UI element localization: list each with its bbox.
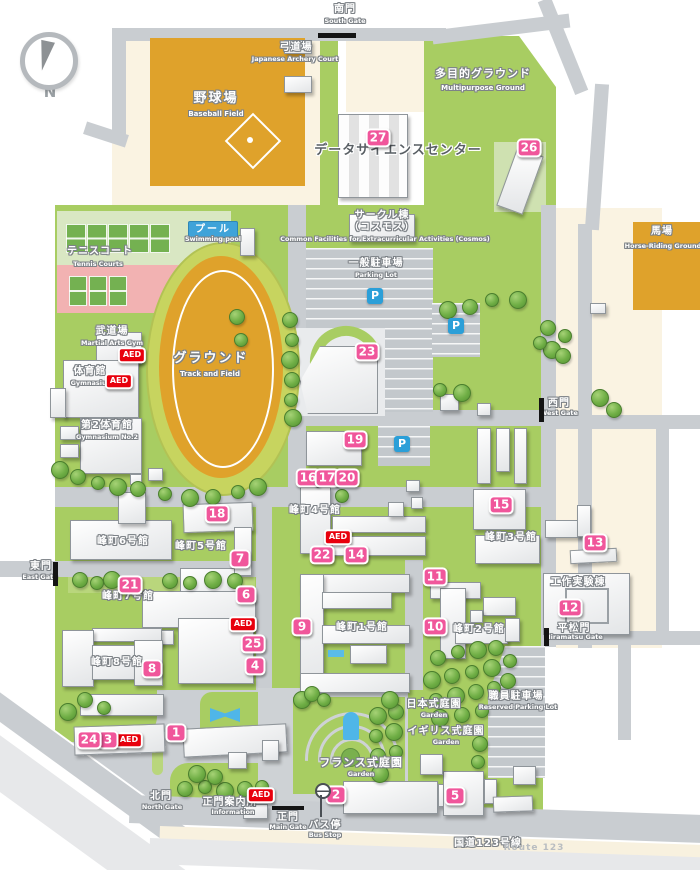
marker-8[interactable]: 8: [142, 659, 163, 678]
road: [618, 645, 631, 740]
tree-icon: [109, 478, 127, 496]
tree-icon: [433, 383, 447, 397]
tree-icon: [472, 736, 488, 752]
building: [411, 497, 423, 509]
marker-18[interactable]: 18: [205, 504, 230, 523]
marker-20[interactable]: 20: [335, 468, 360, 487]
label-gates-main-jp: 正門: [277, 812, 299, 824]
label-areas-datascience-jp: データサイエンスセンター: [314, 144, 482, 159]
label-areas-garden_fr-jp: フランス式庭園: [319, 757, 403, 770]
label-areas-archery-en: Japanese Archery Court: [252, 56, 338, 63]
label-gates-south-en: South Gate: [324, 18, 365, 25]
tree-icon: [555, 348, 571, 364]
campus-map: プール南門South Gate野球場Baseball Field弓道場Japan…: [0, 0, 700, 870]
track-lane-line: [172, 270, 274, 468]
building: [322, 592, 392, 609]
building: [470, 610, 483, 623]
aed-badge: AED: [324, 529, 352, 545]
tree-icon: [284, 372, 300, 388]
label-gates-west-jp: 西門: [548, 398, 570, 410]
label-areas-garden_jp-jp: 日本式庭園: [407, 699, 462, 711]
label-areas-archery-jp: 弓道場: [280, 42, 313, 54]
tree-icon: [462, 299, 478, 315]
gate-line: [53, 562, 58, 586]
label-areas-circle-en: Common Facilities for Extracurricular Ac…: [280, 236, 490, 243]
tennis-court: [69, 276, 87, 306]
label-areas-baseball-en: Baseball Field: [188, 110, 243, 118]
marker-22[interactable]: 22: [310, 545, 335, 564]
marker-11[interactable]: 11: [423, 567, 448, 586]
label-areas-parking_general-en: Parking Lot: [355, 272, 397, 279]
tree-icon: [451, 645, 465, 659]
aed-badge: AED: [229, 616, 257, 632]
tree-icon: [205, 489, 221, 505]
building: [514, 428, 527, 484]
tree-icon: [285, 333, 299, 347]
lawn-area: [320, 40, 338, 206]
tree-icon: [606, 402, 622, 418]
building: [262, 740, 279, 761]
tree-icon: [385, 723, 403, 741]
label-areas-multipurpose-en: Multipurpose Ground: [441, 84, 525, 92]
tree-icon: [177, 781, 193, 797]
marker-7[interactable]: 7: [230, 549, 251, 568]
label-areas-garden_jp-en: Garden: [421, 712, 448, 719]
label-areas-circle-jp: サークル棟 （コスモス）: [349, 210, 415, 233]
aed-badge: AED: [247, 787, 275, 803]
building: [284, 76, 312, 93]
building: [420, 754, 443, 775]
tree-icon: [284, 393, 298, 407]
label-gates-west-en: West Gate: [540, 410, 578, 417]
tree-icon: [181, 489, 199, 507]
tree-icon: [231, 485, 245, 499]
tree-icon: [317, 693, 331, 707]
label-areas-ground-en: Track and Field: [180, 370, 240, 378]
tree-icon: [130, 481, 146, 497]
label-areas-horse-en: Horse-Riding Ground: [625, 243, 700, 250]
building: [477, 403, 491, 416]
tree-icon: [468, 684, 484, 700]
label-areas-parking_general-jp: 一般駐車場: [349, 258, 404, 270]
label-areas-mine2-jp: 峰町2号館: [453, 624, 505, 636]
label-areas-gym-jp: 体育館: [74, 366, 107, 378]
marker-13[interactable]: 13: [583, 533, 608, 552]
tree-icon: [59, 703, 77, 721]
building: [118, 492, 146, 524]
label-gates-main-en: Main Gate: [269, 824, 306, 831]
label-areas-kosaku-jp: 工作実験棟: [551, 577, 606, 589]
tree-icon: [369, 729, 383, 743]
label-areas-multipurpose-jp: 多目的グラウンド: [435, 68, 531, 81]
label-areas-horse-jp: 馬場: [651, 226, 673, 238]
aed-badge: AED: [105, 373, 133, 389]
marker-1[interactable]: 1: [166, 723, 187, 742]
label-areas-baseball-jp: 野球場: [193, 92, 238, 107]
tree-icon: [162, 573, 178, 589]
building: [388, 502, 404, 517]
tree-icon: [469, 641, 487, 659]
label-areas-tennis-en: Tennis Courts: [73, 261, 123, 268]
gate-line: [318, 33, 356, 38]
tree-icon: [485, 293, 499, 307]
label-areas-garden_uk-en: Garden: [433, 739, 460, 746]
tree-icon: [207, 769, 223, 785]
parking-badge: P: [448, 318, 464, 334]
marker-21[interactable]: 21: [118, 575, 143, 594]
label-areas-mine6-jp: 峰町6号館: [97, 536, 149, 548]
tree-icon: [77, 692, 93, 708]
tree-icon: [284, 409, 302, 427]
label-gates-east-jp: 東門: [30, 561, 52, 573]
tree-icon: [91, 476, 105, 490]
aed-badge: AED: [115, 732, 143, 748]
label-gates-north-en: North Gate: [142, 804, 182, 811]
pitcher-mound: [247, 137, 253, 143]
tree-icon: [97, 701, 111, 715]
label-areas-mine8-jp: 峰町8号館: [91, 657, 143, 669]
marker-25[interactable]: 25: [241, 634, 266, 653]
label-areas-staff_parking-jp: 職員駐車場: [489, 691, 544, 703]
label-areas-mine3-jp: 峰町3号館: [485, 532, 537, 544]
tree-icon: [509, 291, 527, 309]
gate-line: [272, 806, 304, 810]
tree-icon: [483, 659, 501, 677]
tree-icon: [471, 755, 485, 769]
label-gates-north-jp: 北門: [150, 791, 172, 803]
aed-badge: AED: [118, 347, 146, 363]
label-areas-staff_parking-en: Reserved Parking Lot: [479, 704, 557, 711]
tree-icon: [282, 312, 298, 328]
label-gates-hiramatsu-en: Hiramatsu Gate: [545, 634, 603, 641]
building: [590, 303, 606, 314]
tree-icon: [188, 765, 206, 783]
label-areas-gym2-en: Gymnasium No.2: [76, 434, 138, 441]
building: [577, 505, 591, 537]
label-areas-budokan-jp: 武道場: [96, 326, 129, 338]
marker-14[interactable]: 14: [344, 545, 369, 564]
marker-26[interactable]: 26: [517, 138, 542, 157]
marker-5[interactable]: 5: [445, 786, 466, 805]
label-areas-mine4-jp: 峰町4号館: [289, 505, 341, 517]
tree-icon: [234, 333, 248, 347]
building: [505, 618, 520, 642]
parking-badge: P: [394, 436, 410, 452]
building: [60, 444, 79, 458]
building: [228, 752, 247, 769]
label-areas-mine5-jp: 峰町5号館: [175, 541, 227, 553]
building: [240, 228, 255, 256]
tree-icon: [500, 673, 516, 689]
building: [62, 630, 94, 687]
tree-icon: [70, 469, 86, 485]
tree-icon: [381, 691, 399, 709]
tree-icon: [90, 576, 104, 590]
tree-icon: [558, 329, 572, 343]
label-areas-route123-en: Route 123: [504, 843, 565, 853]
tree-icon: [183, 576, 197, 590]
building: [477, 428, 491, 484]
building: [50, 388, 66, 418]
tree-icon: [488, 640, 504, 656]
tennis-court: [89, 276, 107, 306]
building: [148, 468, 163, 481]
tree-icon: [465, 665, 479, 679]
label-areas-tennis-jp: テニスコート: [67, 246, 133, 258]
building: [493, 795, 534, 812]
marker-10[interactable]: 10: [423, 617, 448, 636]
tree-icon: [204, 571, 222, 589]
label-areas-garden_uk-jp: イギリス式庭園: [408, 726, 485, 738]
tree-icon: [453, 384, 471, 402]
tree-icon: [369, 707, 387, 725]
gate-line: [539, 398, 544, 422]
bus-stop-pole: [320, 795, 322, 817]
tennis-court: [150, 224, 170, 253]
label-areas-info-en: Information: [211, 809, 254, 816]
bus-stop-icon: [315, 783, 331, 799]
tree-icon: [591, 389, 609, 407]
road: [656, 429, 669, 633]
label-areas-gym2-jp: 第2体育館: [81, 420, 133, 432]
tree-icon: [540, 320, 556, 336]
road: [112, 28, 126, 140]
tree-icon: [444, 668, 460, 684]
marker-12[interactable]: 12: [558, 598, 583, 617]
marker-15[interactable]: 15: [489, 495, 514, 514]
tennis-court: [109, 276, 127, 306]
label-areas-pool-en: Swimming pool: [185, 236, 241, 243]
gate-line: [544, 628, 549, 646]
label-areas-garden_fr-en: Garden: [348, 771, 375, 778]
building: [513, 766, 536, 785]
tree-icon: [229, 309, 245, 325]
building: [483, 597, 516, 616]
tree-icon: [158, 487, 172, 501]
marker-19[interactable]: 19: [343, 430, 368, 449]
label-areas-busstop-en: Bus Stop: [309, 832, 342, 839]
tree-icon: [335, 489, 349, 503]
marker-9[interactable]: 9: [292, 617, 313, 636]
parking-badge: P: [367, 288, 383, 304]
tree-icon: [533, 336, 547, 350]
pond: [328, 650, 344, 657]
pond: [343, 712, 359, 740]
building: [343, 781, 438, 814]
tree-icon: [51, 461, 69, 479]
marker-4[interactable]: 4: [245, 656, 266, 675]
tree-icon: [423, 671, 441, 689]
tree-icon: [439, 301, 457, 319]
label-areas-ground-jp: グラウンド: [173, 352, 248, 367]
building: [496, 428, 510, 472]
marker-23[interactable]: 23: [355, 342, 380, 361]
building: [350, 645, 387, 664]
tree-icon: [503, 654, 517, 668]
label-gates-south-jp: 南門: [334, 4, 356, 16]
tree-icon: [430, 650, 446, 666]
tree-icon: [249, 478, 267, 496]
label-areas-busstop-jp: バス停: [309, 820, 342, 832]
marker-24[interactable]: 24: [77, 730, 102, 749]
tree-icon: [281, 351, 299, 369]
label-areas-mine1-jp: 峰町1号館: [336, 622, 388, 634]
building: [545, 520, 581, 538]
building: [406, 480, 420, 492]
marker-6[interactable]: 6: [236, 585, 257, 604]
marker-27[interactable]: 27: [366, 128, 391, 147]
tree-icon: [72, 572, 88, 588]
